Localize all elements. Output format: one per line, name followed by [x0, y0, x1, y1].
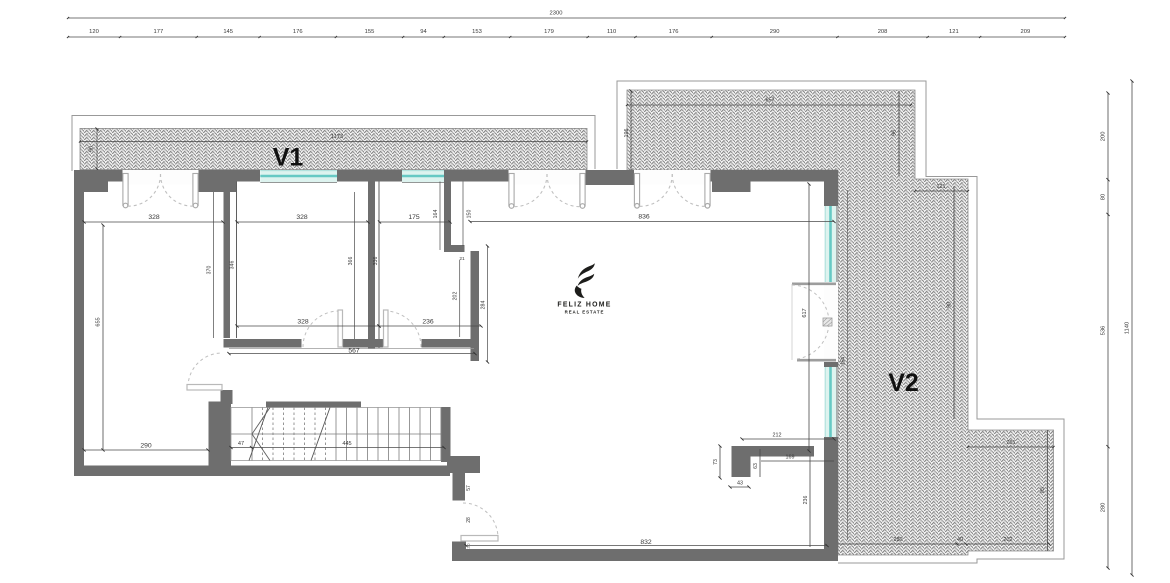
svg-text:110: 110: [607, 29, 616, 35]
svg-text:94: 94: [420, 29, 427, 35]
svg-text:121: 121: [949, 29, 959, 35]
svg-text:1140: 1140: [1125, 322, 1131, 334]
svg-text:2300: 2300: [550, 11, 563, 17]
svg-text:832: 832: [640, 539, 652, 546]
svg-text:120: 120: [89, 29, 99, 35]
svg-text:145: 145: [223, 29, 233, 35]
svg-text:196: 196: [624, 129, 630, 138]
svg-text:176: 176: [293, 29, 303, 35]
svg-text:236: 236: [803, 496, 809, 505]
svg-text:150: 150: [467, 210, 473, 219]
svg-text:1173: 1173: [331, 134, 343, 140]
svg-text:655: 655: [96, 317, 102, 326]
svg-text:201: 201: [1007, 440, 1016, 446]
svg-text:FELIZ HOME: FELIZ HOME: [557, 302, 611, 309]
svg-text:153: 153: [472, 29, 482, 35]
svg-text:30: 30: [466, 543, 471, 549]
svg-text:280: 280: [1101, 503, 1107, 513]
svg-text:V1: V1: [273, 144, 304, 172]
svg-text:328: 328: [297, 319, 309, 326]
svg-text:567: 567: [348, 348, 360, 355]
svg-text:617: 617: [802, 308, 808, 317]
svg-text:154: 154: [841, 357, 847, 366]
svg-text:V2: V2: [888, 369, 919, 397]
svg-text:REAL ESTATE: REAL ESTATE: [565, 309, 605, 314]
svg-text:370: 370: [207, 266, 213, 275]
svg-text:85: 85: [1040, 487, 1046, 493]
svg-text:73: 73: [713, 459, 719, 465]
svg-text:155: 155: [365, 29, 375, 35]
svg-text:176: 176: [669, 29, 679, 35]
svg-text:836: 836: [638, 214, 650, 221]
svg-text:202: 202: [1004, 537, 1013, 543]
svg-text:284: 284: [481, 301, 487, 310]
svg-text:21: 21: [459, 256, 465, 262]
svg-text:47: 47: [238, 441, 244, 447]
svg-text:63: 63: [753, 463, 759, 469]
svg-text:164: 164: [433, 210, 439, 219]
svg-text:212: 212: [773, 433, 782, 439]
svg-text:280: 280: [894, 537, 903, 543]
svg-text:179: 179: [544, 29, 554, 35]
svg-text:200: 200: [1101, 132, 1107, 142]
svg-text:445: 445: [342, 441, 351, 447]
svg-text:290: 290: [770, 29, 780, 35]
svg-text:328: 328: [296, 214, 308, 221]
svg-text:177: 177: [154, 29, 164, 35]
svg-text:336: 336: [373, 257, 379, 266]
svg-text:202: 202: [453, 292, 459, 301]
svg-text:90: 90: [947, 302, 953, 308]
svg-text:366: 366: [348, 257, 354, 266]
svg-text:328: 328: [148, 214, 160, 221]
svg-text:175: 175: [408, 214, 420, 221]
svg-text:43: 43: [737, 481, 743, 487]
svg-text:90: 90: [89, 146, 95, 152]
svg-text:657: 657: [766, 98, 775, 104]
svg-text:208: 208: [878, 29, 888, 35]
svg-text:57: 57: [466, 485, 472, 491]
svg-text:209: 209: [1021, 29, 1031, 35]
svg-text:96: 96: [892, 130, 898, 136]
svg-text:236: 236: [422, 319, 434, 326]
svg-text:80: 80: [1101, 194, 1107, 200]
svg-text:290: 290: [140, 443, 152, 450]
svg-text:346: 346: [230, 261, 236, 270]
svg-text:169: 169: [786, 455, 795, 461]
svg-text:28: 28: [466, 517, 472, 523]
svg-text:40: 40: [957, 537, 963, 543]
svg-text:121: 121: [937, 184, 946, 190]
svg-text:536: 536: [1101, 326, 1107, 336]
